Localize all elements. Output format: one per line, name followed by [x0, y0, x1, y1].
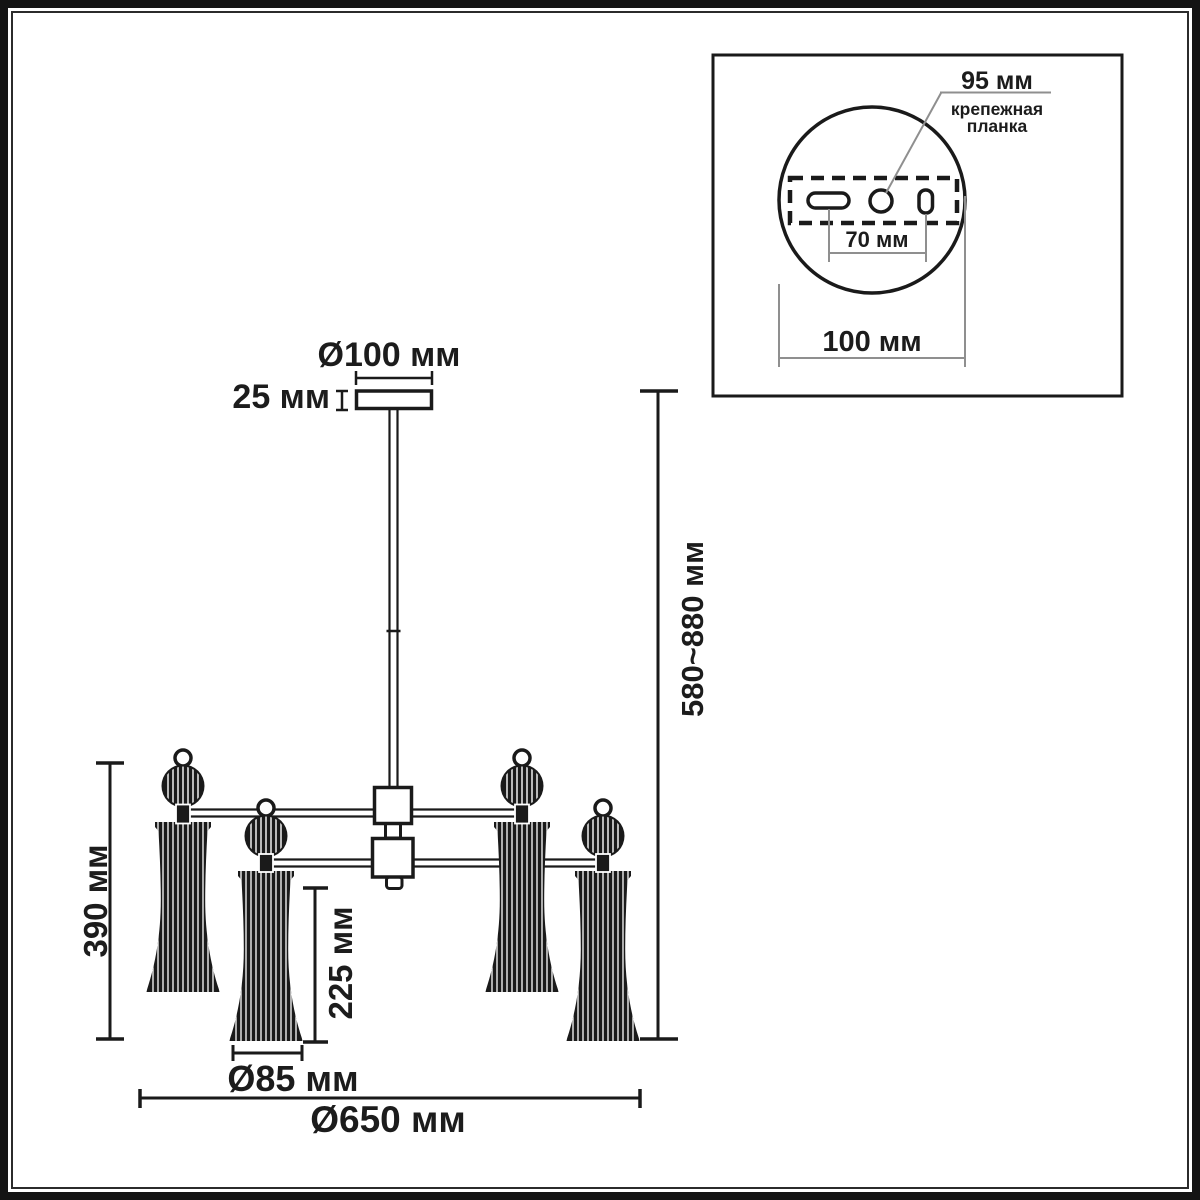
canopy-diameter-label: Ø100 мм — [318, 336, 461, 374]
lower-arm — [266, 860, 603, 867]
mounting-plate-inset: 95 мм крепежная планка 70 мм 100 мм — [713, 55, 1122, 396]
ceiling-canopy — [357, 391, 432, 409]
center-hub — [373, 788, 414, 889]
shade-diameter-label: Ø85 мм — [227, 1058, 358, 1099]
lamp-outer-left — [147, 750, 220, 992]
upper-arm — [183, 810, 522, 817]
diagram-page: 95 мм крепежная планка 70 мм 100 мм Ø100… — [0, 0, 1200, 1200]
holes-spacing-label: 70 мм — [845, 227, 908, 252]
plate-diameter-label: 100 мм — [822, 326, 921, 358]
suspension-rod — [387, 408, 401, 789]
suspension-height-dimension — [640, 391, 678, 1039]
suspension-height-label: 580~880 мм — [675, 541, 710, 717]
shade-height-label: 225 мм — [322, 906, 359, 1019]
overall-diameter-label: Ø650 мм — [310, 1099, 466, 1140]
fixture-height-label: 390 мм — [77, 844, 114, 957]
lamp-inner-right — [486, 750, 559, 992]
chandelier-dimension-diagram: 95 мм крепежная планка 70 мм 100 мм Ø100… — [0, 0, 1200, 1200]
canopy-height-label: 25 мм — [232, 378, 330, 416]
canopy-height-dimension — [336, 391, 348, 410]
plate-width-label: 95 мм — [961, 67, 1033, 95]
lamp-inner-left — [230, 800, 303, 1041]
chandelier-drawing: Ø100 мм 25 мм — [77, 336, 710, 1140]
mounting-plate-caption-line2: планка — [967, 116, 1028, 136]
lamp-outer-right — [567, 800, 640, 1041]
